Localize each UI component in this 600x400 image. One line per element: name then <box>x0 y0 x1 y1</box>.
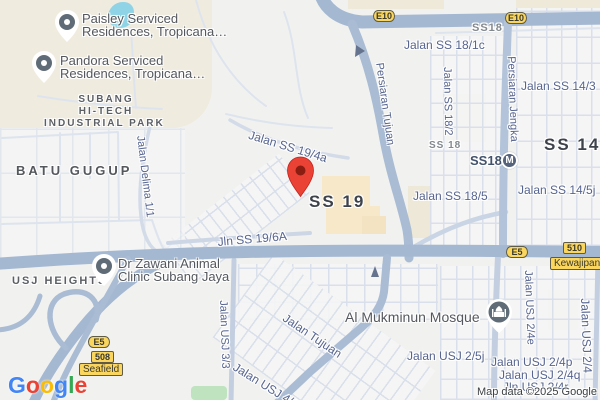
station-symbol: M <box>505 155 513 166</box>
mosque-pin-icon[interactable] <box>484 298 514 334</box>
street-label-jalan-usj2-4: Jalan USJ 2/4 <box>578 298 595 373</box>
street-label-jalan-ss18-1c: Jalan SS 18/1c <box>404 38 485 52</box>
paisley-pin-icon[interactable] <box>53 9 81 43</box>
street-label-jalan-ss18-5: Jalan SS 18/5 <box>413 189 488 203</box>
station-label-ss18: SS18 <box>470 153 502 168</box>
badge-e10-east: E10 <box>505 12 527 24</box>
area-label-ss14: SS 14 <box>544 135 600 155</box>
landuse-strip-top1 <box>348 0 444 9</box>
street-label-jalan-ss14-3: Jalan SS 14/3 <box>521 79 596 93</box>
area-label-batu-gugup: BATU GUGUP <box>16 163 132 178</box>
street-label-jalan-ss14-5j: Jalan SS 14/5j <box>518 183 595 197</box>
area-label-ss18-inner: SS 18 <box>429 140 461 151</box>
logo-letter: e <box>74 372 87 398</box>
park-green <box>191 386 227 400</box>
poi-label-pandora[interactable]: Pandora Serviced Residences, Tropicana… <box>60 54 205 80</box>
badge-510: 510 <box>563 242 586 254</box>
badge-e5-mid: E5 <box>506 246 528 258</box>
poi-label-mosque[interactable]: Al Mukminun Mosque <box>345 311 480 324</box>
google-logo[interactable]: Google <box>8 372 87 399</box>
street-label-jalan-usj3-3: Jalan USJ 3/3 <box>217 300 231 369</box>
area-label-subang-hitech: SUBANG HI-TECH INDUSTRIAL PARK <box>56 94 156 130</box>
poi-label-zawani[interactable]: Dr Zawani Animal Clinic Subang Jaya <box>118 257 229 283</box>
logo-letter: o <box>26 372 40 398</box>
badge-508: 508 <box>91 351 114 363</box>
zawani-pin-icon[interactable] <box>90 253 118 287</box>
badge-e10-west: E10 <box>373 10 395 22</box>
badge-kewajipan: Kewajipan <box>550 257 600 270</box>
logo-letter: o <box>40 372 54 398</box>
street-label-persiaran-tujuan: Persiaran Tujuan <box>373 62 396 146</box>
street-label-jalan-usj2-4p: Jalan USJ 2/4p <box>491 355 572 369</box>
landuse-commercial-ss19-3 <box>362 216 386 234</box>
street-label-jalan-usj2-4e: Jalan USJ 2/4e <box>522 270 537 345</box>
area-label-ss18-top: SS18 <box>472 22 503 34</box>
street-grid-batu-gugup <box>0 128 185 262</box>
ramp-loop-2 <box>0 296 40 330</box>
map-canvas[interactable]: SUBANG HI-TECH INDUSTRIAL PARK BATU GUGU… <box>0 0 600 400</box>
poi-label-paisley[interactable]: Paisley Serviced Residences, Tropicana… <box>82 12 227 38</box>
street-label-jalan-ss18-2: Jalan SS 18/2 <box>441 67 454 136</box>
logo-letter: g <box>54 372 68 398</box>
street-label-jalan-usj2-5j: Jalan USJ 2/5j <box>407 349 484 363</box>
red-map-marker[interactable] <box>286 156 315 198</box>
train-station-icon[interactable]: M <box>501 152 518 169</box>
area-label-ss19: SS 19 <box>309 192 365 212</box>
map-attribution: Map data ©2025 Google <box>477 386 597 398</box>
badge-e5-west: E5 <box>88 336 110 348</box>
pandora-pin-icon[interactable] <box>30 50 58 84</box>
logo-letter: G <box>8 372 26 398</box>
street-grid-ss14 <box>516 8 600 246</box>
oneway-arrow-north <box>355 45 365 57</box>
